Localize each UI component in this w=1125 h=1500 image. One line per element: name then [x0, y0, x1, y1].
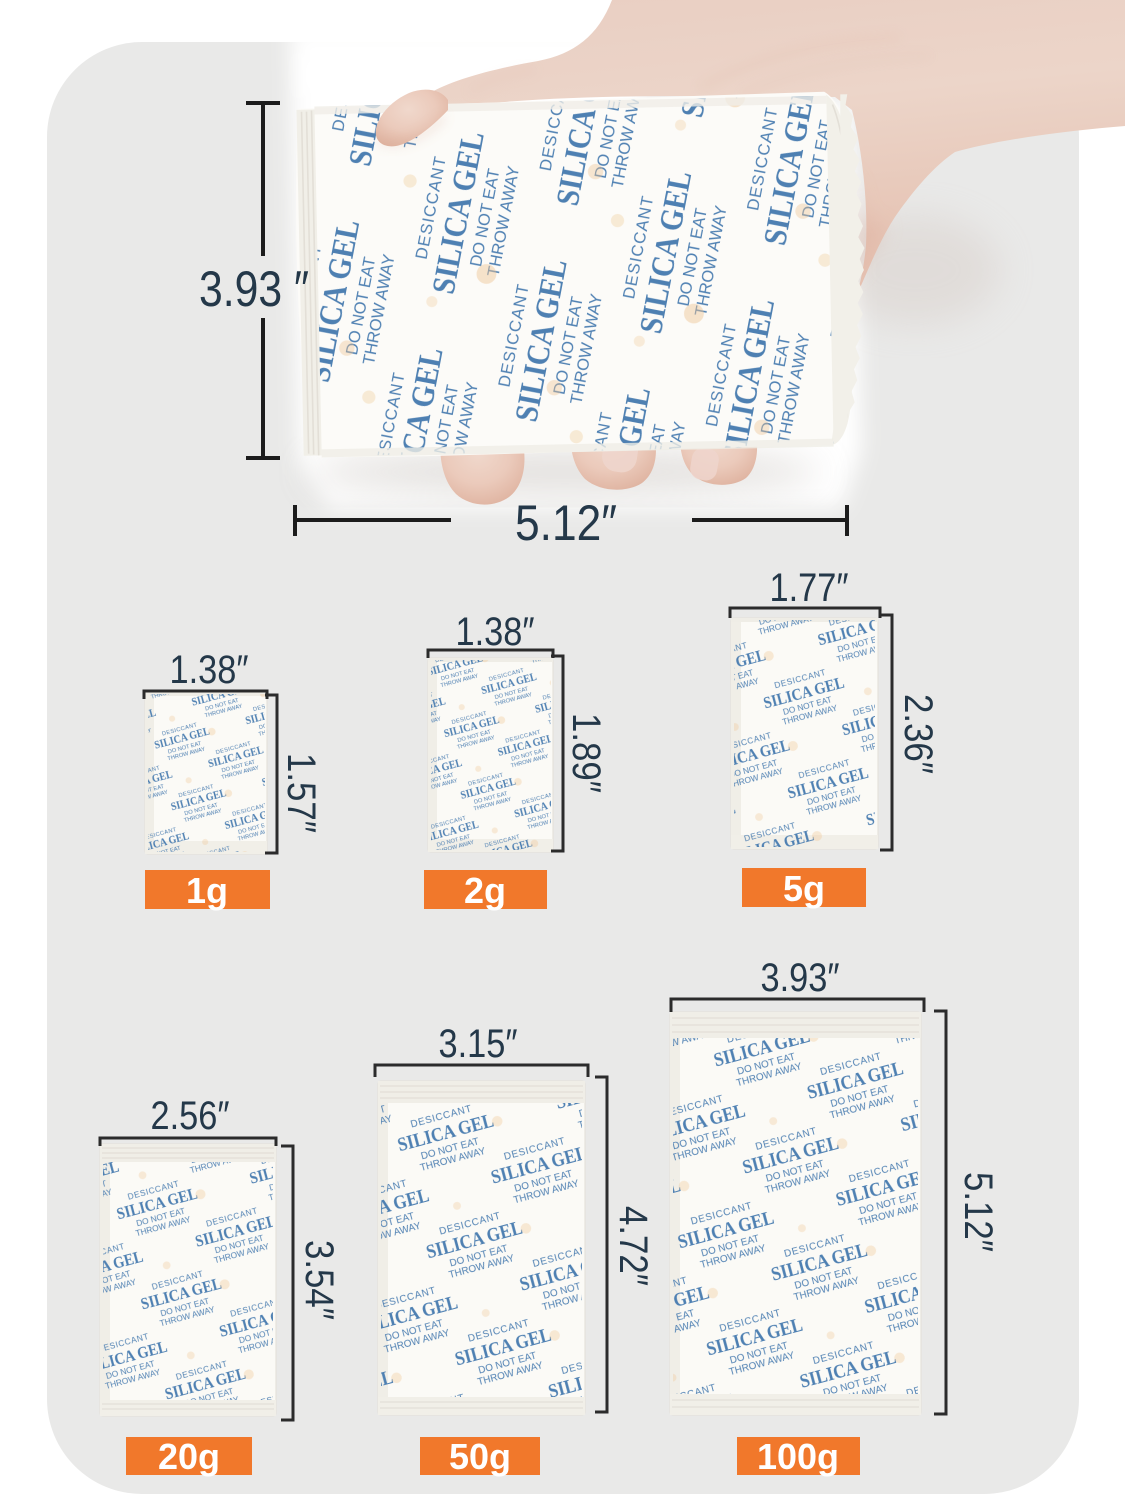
- svg-text:5.12″: 5.12″: [515, 495, 617, 551]
- svg-text:2.36″: 2.36″: [896, 694, 940, 774]
- svg-text:2g: 2g: [464, 870, 506, 911]
- svg-text:5.12″: 5.12″: [956, 1172, 1000, 1252]
- svg-text:3.93 ″: 3.93 ″: [199, 261, 309, 317]
- svg-text:3.15″: 3.15″: [439, 1022, 518, 1066]
- svg-text:1.38″: 1.38″: [170, 648, 249, 692]
- svg-text:50g: 50g: [449, 1436, 511, 1477]
- svg-text:20g: 20g: [158, 1436, 220, 1477]
- svg-text:1.77″: 1.77″: [770, 566, 849, 610]
- svg-text:5g: 5g: [783, 868, 825, 909]
- svg-text:2.56″: 2.56″: [151, 1094, 230, 1138]
- svg-text:3.54″: 3.54″: [297, 1240, 341, 1320]
- svg-text:1.89″: 1.89″: [564, 713, 608, 793]
- svg-text:1g: 1g: [186, 870, 228, 911]
- svg-text:1.38″: 1.38″: [456, 610, 535, 654]
- svg-text:1.57″: 1.57″: [279, 753, 323, 833]
- svg-text:3.93″: 3.93″: [761, 956, 840, 1000]
- svg-text:4.72″: 4.72″: [611, 1206, 655, 1286]
- svg-text:100g: 100g: [757, 1436, 839, 1477]
